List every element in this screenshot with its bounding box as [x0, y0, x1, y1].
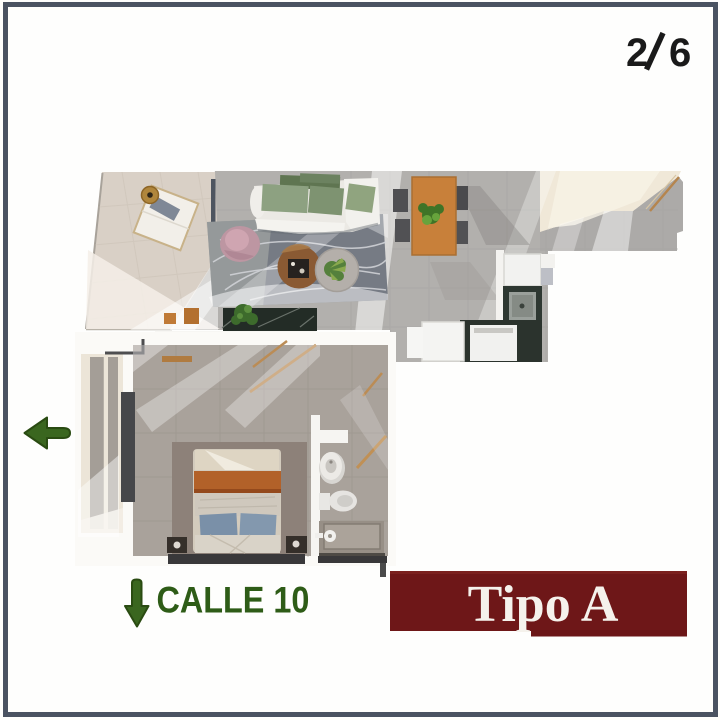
svg-text:CALLE 10: CALLE 10: [157, 581, 310, 621]
svg-text:Tipo A: Tipo A: [468, 576, 619, 633]
svg-text:6: 6: [669, 31, 691, 75]
